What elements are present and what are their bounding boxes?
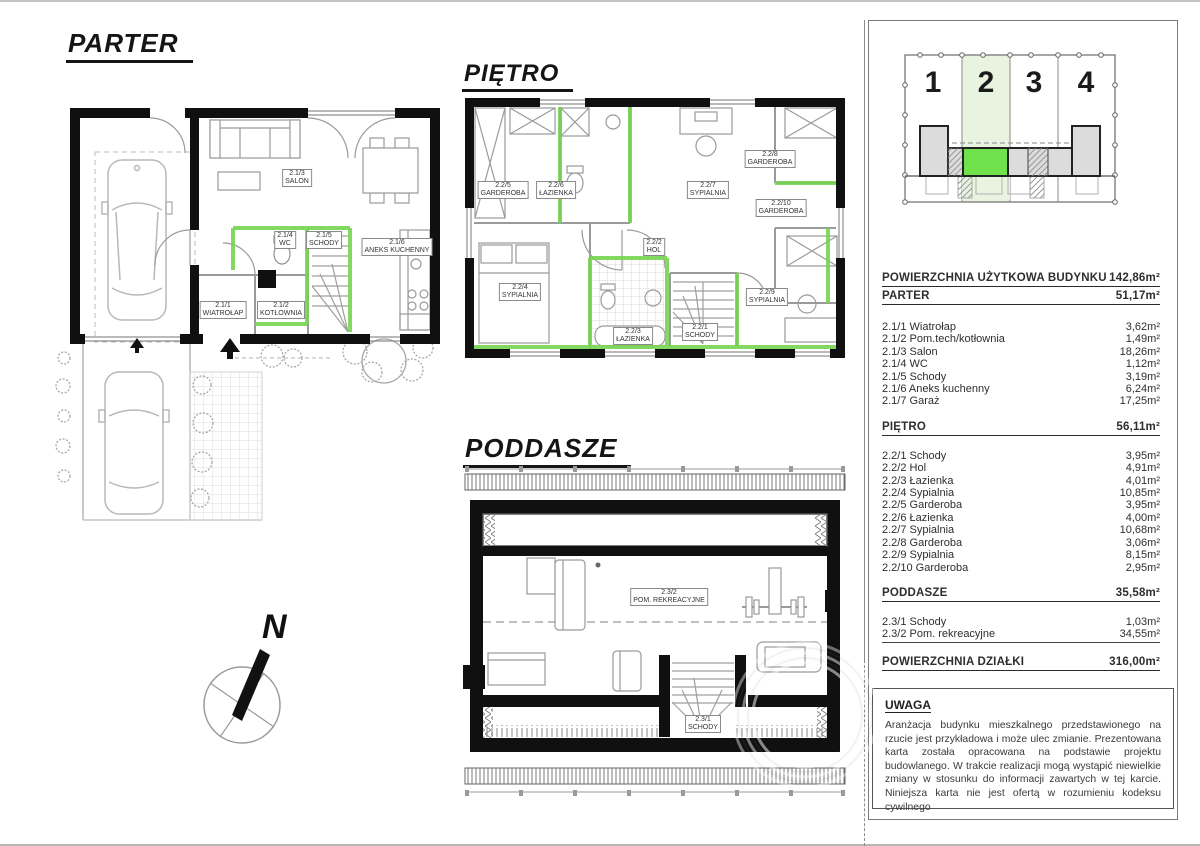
pietro-floor-plan [455, 88, 855, 378]
table-row: 2.1/5 Schody3,19m² [882, 371, 1160, 383]
room-label-schody-parter: 2.1/5SCHODY [306, 231, 342, 249]
table-row: 2.2/6 Łazienka4,00m² [882, 512, 1160, 524]
note-title: UWAGA [885, 698, 931, 713]
car-garage-icon [95, 152, 195, 342]
roof-hatch-top [465, 466, 845, 490]
room-label-2-2-3: 2.2/3ŁAZIENKA [613, 327, 653, 345]
panel-divider [864, 20, 865, 660]
unit-number-1: 1 [925, 66, 942, 100]
room-label-2-3-2: 2.3/2POM. REKREACYJNE [630, 588, 708, 606]
table-row: 2.1/6 Aneks kuchenny6,24m² [882, 383, 1160, 395]
unit-number-4: 4 [1078, 66, 1095, 100]
table-row: 2.1/7 Garaż17,25m² [882, 395, 1160, 407]
room-label-kotlownia: 2.1/2KOTŁOWNIA [257, 301, 305, 319]
car-driveway-icon [99, 372, 169, 514]
panel-divider-dashed [864, 660, 865, 846]
room-label-aneks: 2.1/6ANEKS KUCHENNY [362, 238, 433, 256]
room-label-2-2-5: 2.2/5GARDEROBA [478, 181, 529, 199]
poddasze-furniture [488, 558, 821, 691]
table-row: 2.3/1 Schody1,03m² [882, 616, 1160, 628]
table-row: 2.1/1 Wiatrołap3,62m² [882, 321, 1160, 333]
photo-edge-top [0, 0, 1200, 2]
driveway [83, 344, 262, 520]
note-box: UWAGA Aranżacja budynku mieszkalnego prz… [872, 688, 1174, 809]
table-row: 2.1/4 WC1,12m² [882, 358, 1160, 370]
room-label-salon: 2.1/3SALON [282, 169, 312, 187]
table-row: 2.2/10 Garderoba2,95m² [882, 562, 1160, 574]
table-row-poddasze: PODDASZE35,58m² [882, 586, 1160, 602]
table-row-plot-area: POWIERZCHNIA DZIAŁKI316,00m² [882, 655, 1160, 671]
table-row: 2.2/5 Garderoba3,95m² [882, 499, 1160, 511]
room-label-2-2-1: 2.2/1SCHODY [682, 323, 718, 341]
room-label-2-2-9: 2.2/9SYPIALNIA [746, 288, 788, 306]
table-row: 2.2/2 Hol4,91m² [882, 462, 1160, 474]
room-label-wc: 2.1/4WC [274, 231, 296, 249]
room-label-2-2-6: 2.2/6ŁAZIENKA [536, 181, 576, 199]
highlighted-unit [963, 148, 1008, 176]
room-label-wiatrolap: 2.1/1WIATROŁAP [200, 301, 247, 319]
table-row-total-usable: POWIERZCHNIA UŻYTKOWA BUDYNKU142,86m² [882, 271, 1160, 287]
parter-floor-plan [50, 80, 460, 530]
table-row: 2.1/2 Pom.tech/kotłownia1,49m² [882, 333, 1160, 345]
table-row: 2.2/8 Garderoba3,06m² [882, 537, 1160, 549]
table-row-pietro: PIĘTRO56,11m² [882, 420, 1160, 436]
room-label-2-3-1: 2.3/1SCHODY [685, 715, 721, 733]
room-label-2-2-2: 2.2/2HOL [643, 238, 665, 256]
room-label-2-2-7: 2.2/7SYPIALNIA [687, 181, 729, 199]
parter-title: PARTER [66, 28, 193, 63]
area-summary-table: POWIERZCHNIA UŻYTKOWA BUDYNKU142,86m² PA… [882, 271, 1160, 671]
site-location-diagram [880, 28, 1170, 248]
table-row: 2.3/2 Pom. rekreacyjne34,55m² [882, 628, 1160, 642]
roof-hatch-bottom [465, 768, 845, 796]
unit-number-2: 2 [978, 66, 995, 100]
compass-icon [190, 595, 310, 770]
room-label-2-2-8: 2.2/8GARDEROBA [745, 150, 796, 168]
table-row-parter: PARTER51,17m² [882, 289, 1160, 305]
table-row: 2.2/9 Sypialnia8,15m² [882, 549, 1160, 561]
room-label-2-2-10: 2.2/10GARDEROBA [756, 199, 807, 217]
table-row: 2.2/3 Łazienka4,01m² [882, 475, 1160, 487]
table-row: 2.2/4 Sypialnia10,85m² [882, 487, 1160, 499]
unit-number-3: 3 [1026, 66, 1043, 100]
room-label-2-2-4: 2.2/4SYPIALNIA [499, 283, 541, 301]
floor-plan-sheet: PARTER [0, 0, 1200, 846]
poddasze-floor-plan [455, 462, 855, 812]
attic-lower-strip [483, 695, 827, 738]
note-body: Aranżacja budynku mieszkalnego przedstaw… [885, 719, 1161, 814]
table-row: 2.1/3 Salon18,26m² [882, 346, 1160, 358]
table-row: 2.2/7 Sypialnia10,68m² [882, 524, 1160, 536]
compass-north-label: N [262, 608, 287, 647]
table-row: 2.2/1 Schody3,95m² [882, 450, 1160, 462]
